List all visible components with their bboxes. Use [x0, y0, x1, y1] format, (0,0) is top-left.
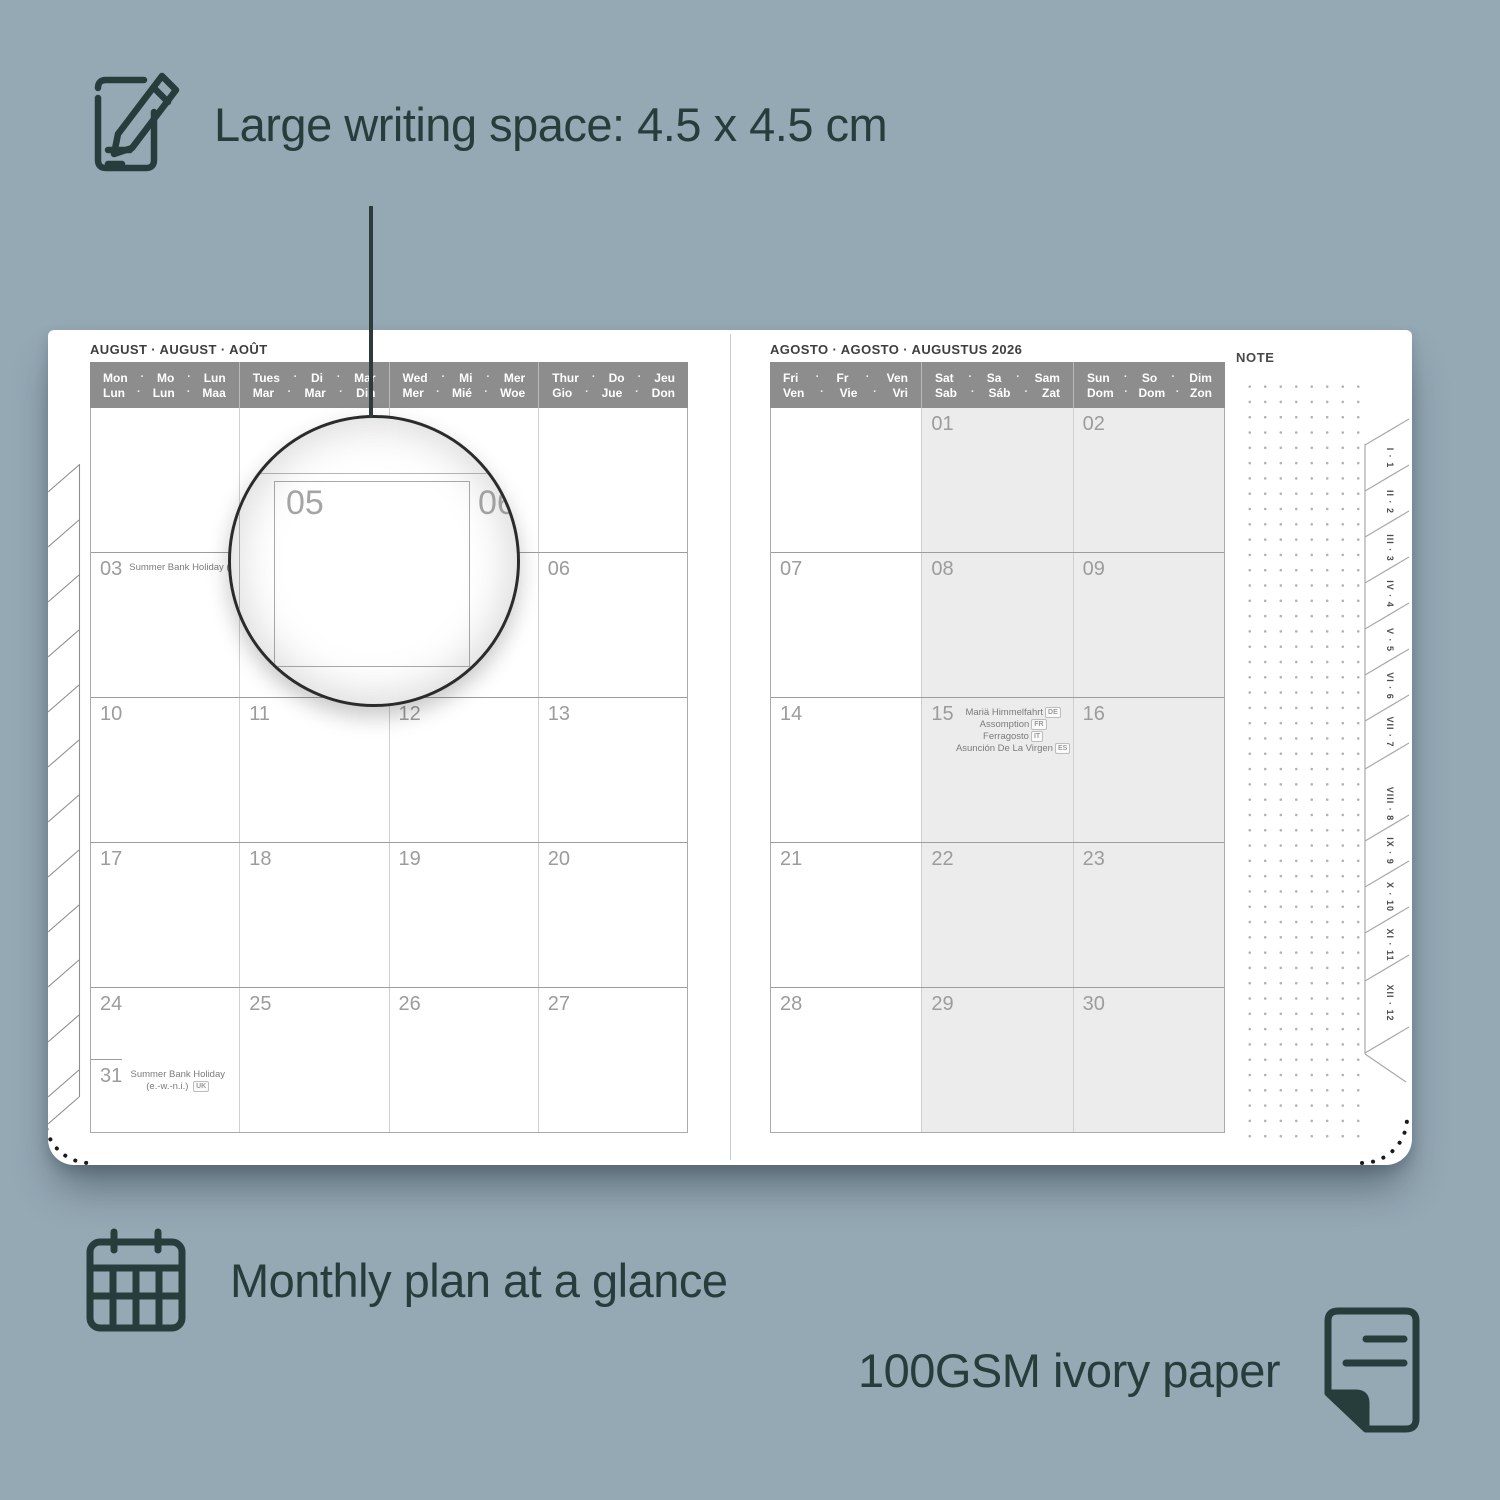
day-name: Tues [253, 372, 280, 384]
dot-separator: · [866, 372, 870, 383]
dot-separator: · [638, 372, 642, 383]
note-dot-grid [1237, 374, 1365, 1140]
calendar-cell: 19 [389, 843, 538, 987]
day-name: Mié [452, 387, 472, 399]
callout-pointer-line [369, 206, 373, 418]
calendar-cell: 10 [91, 698, 239, 842]
week-row: 28 29 30 [771, 987, 1224, 1132]
calendar-cell: 03 Summer Bank Holiday (sc.)UK [91, 553, 239, 697]
dot-separator: · [873, 387, 877, 398]
calendar-cell: 02 [1073, 408, 1224, 552]
date-number: 18 [240, 848, 271, 871]
dot-separator: · [592, 372, 596, 383]
date-number: 27 [539, 993, 570, 1016]
calendar-cell: 09 [1073, 553, 1224, 697]
calendar-cell: 27 [538, 988, 687, 1132]
calendar-cell: 18 [239, 843, 388, 987]
dot-separator: · [1124, 387, 1128, 398]
date-number: 14 [771, 703, 802, 726]
date-number: 11 [240, 703, 270, 726]
date-number: 31 [91, 1065, 122, 1088]
dot-separator: · [820, 387, 824, 398]
product-image-stage: Large writing space: 4.5 x 4.5 cm AUGUST… [0, 0, 1500, 1500]
day-name: Ven [783, 387, 804, 399]
calendar-cell: 25 [239, 988, 388, 1132]
magnified-date: 06 [478, 484, 516, 523]
day-name: Mar [253, 387, 274, 399]
day-name: Woe [500, 387, 525, 399]
calendar-cell: 28 [771, 988, 921, 1132]
date-number: 08 [922, 558, 953, 581]
calendar-cell: 22 [921, 843, 1072, 987]
holiday-label: FerragostoIT [983, 731, 1043, 742]
dot-separator: · [442, 372, 446, 383]
day-name: Dom [1087, 387, 1114, 399]
calendar-cell: 23 [1073, 843, 1224, 987]
holiday-label: Mariä HimmelfahrtDE [965, 707, 1060, 718]
holiday-label: AssomptionFR [980, 719, 1047, 730]
magnifier-circle: 05 06 [228, 415, 520, 707]
date-number: 20 [539, 848, 570, 871]
magnified-date: 05 [286, 484, 324, 523]
date-number: 15 [922, 703, 953, 726]
writing-space-annotation: Large writing space: 4.5 x 4.5 cm [88, 70, 887, 178]
date-number: 25 [240, 993, 271, 1016]
day-header-group: Fri·Fr·Ven Ven·Vie·Vri [770, 362, 921, 408]
week-row: 24 31 Summer Bank Holiday (e.-w.-n.i.) U… [91, 987, 687, 1132]
day-name: Thur [552, 372, 579, 384]
calendar-cell: 16 [1073, 698, 1224, 842]
date-number: 13 [539, 703, 570, 726]
day-name: Jue [602, 387, 623, 399]
day-name: So [1142, 372, 1157, 384]
date-number: 03 [91, 558, 122, 581]
dot-separator: · [816, 372, 820, 383]
date-number: 10 [91, 703, 122, 726]
day-name: Dim [1189, 372, 1212, 384]
country-badge: FR [1031, 719, 1046, 730]
dot-separator: · [287, 387, 291, 398]
dot-separator: · [484, 387, 488, 398]
calendar-cell: 14 [771, 698, 921, 842]
day-header-group: Sat·Sa·Sam Sab·Sáb·Zat [921, 362, 1073, 408]
calendar-cell: 20 [538, 843, 687, 987]
dot-separator: · [141, 372, 145, 383]
right-day-header-bar: Fri·Fr·Ven Ven·Vie·Vri Sat·Sa·Sam Sab·Sá… [770, 362, 1225, 408]
left-day-header-bar: Mon·Mo·Lun Lun·Lun·Maa Tues·Di·Mar Mar·M… [90, 362, 688, 408]
day-name: Mo [157, 372, 174, 384]
dot-separator: · [1124, 372, 1128, 383]
dot-separator: · [1024, 387, 1028, 398]
day-name: Sa [987, 372, 1002, 384]
split-cell-bottom: 31 Summer Bank Holiday (e.-w.-n.i.) UK [91, 1060, 239, 1132]
calendar-cell-split: 24 31 Summer Bank Holiday (e.-w.-n.i.) U… [91, 988, 239, 1132]
pencil-note-icon [88, 70, 188, 178]
week-row: 01 02 [771, 408, 1224, 552]
day-name: Fri [783, 372, 798, 384]
calendar-cell: 11 [239, 698, 388, 842]
day-header-group: Tues·Di·Mar Mar·Mar·Din [239, 362, 389, 408]
day-name: Vie [840, 387, 858, 399]
calendar-cell: 17 [91, 843, 239, 987]
calendar-cell: 30 [1073, 988, 1224, 1132]
day-name: Lun [153, 387, 175, 399]
country-badge: ES [1055, 743, 1070, 754]
calendar-cell [91, 408, 239, 552]
day-name: Sam [1035, 372, 1060, 384]
day-name: Ven [887, 372, 908, 384]
dot-separator: · [137, 387, 141, 398]
date-number: 07 [771, 558, 802, 581]
day-name: Mar [304, 387, 325, 399]
country-badge: DE [1045, 707, 1061, 718]
calendar-cell: 07 [771, 553, 921, 697]
date-number: 02 [1074, 413, 1105, 436]
day-header-group: Thur·Do·Jeu Gio·Jue·Don [538, 362, 688, 408]
day-header-group: Sun·So·Dim Dom·Dom·Zon [1073, 362, 1225, 408]
calendar-cell: 08 [921, 553, 1072, 697]
week-row: 10 11 12 13 [91, 697, 687, 842]
dot-separator: · [1171, 372, 1175, 383]
date-number: 30 [1074, 993, 1105, 1016]
day-name: Don [652, 387, 675, 399]
date-number: 01 [922, 413, 953, 436]
week-row: 17 18 19 20 [91, 842, 687, 987]
dot-separator: · [187, 387, 191, 398]
calendar-cell: 26 [389, 988, 538, 1132]
day-name: Sab [935, 387, 957, 399]
dot-separator: · [436, 387, 440, 398]
date-number: 16 [1074, 703, 1105, 726]
dot-separator: · [1176, 387, 1180, 398]
day-header-group: Wed·Mi·Mer Mer·Mié·Woe [389, 362, 539, 408]
split-cell-top: 24 [91, 988, 122, 1060]
right-month-grid: 01 02 07 08 09 14 15 Mariä HimmelfahrtDE… [770, 408, 1225, 1133]
paper-annotation: 100GSM ivory paper [858, 1305, 1422, 1435]
calendar-cell: 15 Mariä HimmelfahrtDE AssomptionFR Ferr… [921, 698, 1072, 842]
note-panel-label: NOTE [1236, 350, 1275, 365]
date-number: 12 [390, 703, 421, 726]
date-number: 29 [922, 993, 953, 1016]
week-row: 14 15 Mariä HimmelfahrtDE AssomptionFR F… [771, 697, 1224, 842]
day-name: Mi [459, 372, 472, 384]
calendar-grid-icon [84, 1228, 188, 1332]
date-number: 21 [771, 848, 802, 871]
page-spine-divider [730, 334, 731, 1160]
dot-separator: · [294, 372, 298, 383]
day-name: Di [311, 372, 323, 384]
date-number: 19 [390, 848, 421, 871]
calendar-cell: 21 [771, 843, 921, 987]
calendar-cell: 06 [538, 553, 687, 697]
dot-separator: · [187, 372, 191, 383]
day-name: Gio [552, 387, 572, 399]
week-row: 21 22 23 [771, 842, 1224, 987]
calendar-cell: 01 [921, 408, 1072, 552]
day-name: Mer [504, 372, 525, 384]
dot-separator: · [971, 387, 975, 398]
country-badge: UK [193, 1081, 209, 1092]
day-header-group: Mon·Mo·Lun Lun·Lun·Maa [90, 362, 239, 408]
date-number: 28 [771, 993, 802, 1016]
date-number: 22 [922, 848, 953, 871]
calendar-cell: 29 [921, 988, 1072, 1132]
dot-separator: · [339, 387, 343, 398]
holiday-label: Summer Bank Holiday (e.-w.-n.i.) UK [122, 1065, 239, 1093]
day-name: Vri [893, 387, 908, 399]
day-name: Sun [1087, 372, 1110, 384]
paper-sheet-icon [1318, 1305, 1422, 1435]
holiday-label-group: Mariä HimmelfahrtDE AssomptionFR Ferrago… [954, 703, 1073, 755]
calendar-cell [538, 408, 687, 552]
day-name: Zat [1042, 387, 1060, 399]
calendar-cell: 12 [389, 698, 538, 842]
date-number: 17 [91, 848, 122, 871]
dot-separator: · [635, 387, 639, 398]
day-name: Mon [103, 372, 128, 384]
holiday-label: Summer Bank Holiday (sc.)UK [122, 558, 239, 574]
dot-separator: · [585, 387, 589, 398]
day-name: Sáb [989, 387, 1011, 399]
dot-separator: · [1016, 372, 1020, 383]
date-number: 06 [539, 558, 570, 581]
paper-text: 100GSM ivory paper [858, 1343, 1280, 1398]
magnified-cell-border [239, 418, 240, 704]
dot-separator: · [968, 372, 972, 383]
day-name: Maa [202, 387, 225, 399]
dot-separator: · [337, 372, 341, 383]
monthly-plan-annotation: Monthly plan at a glance [84, 1228, 728, 1332]
dot-separator: · [486, 372, 490, 383]
calendar-cell: 13 [538, 698, 687, 842]
day-name: Sat [935, 372, 954, 384]
week-row: 07 08 09 [771, 552, 1224, 697]
day-name: Dom [1139, 387, 1166, 399]
day-name: Lun [204, 372, 226, 384]
date-number: 24 [91, 993, 122, 1016]
day-name: Zon [1190, 387, 1212, 399]
monthly-plan-text: Monthly plan at a glance [230, 1253, 728, 1308]
right-page-title: AGOSTO · AGOSTO · AUGUSTUS 2026 [770, 342, 1022, 357]
day-name: Jeu [654, 372, 675, 384]
day-name: Lun [103, 387, 125, 399]
holiday-label: Asunción De La VirgenES [956, 743, 1070, 754]
date-number: 26 [390, 993, 421, 1016]
magnified-cell-border [231, 473, 517, 474]
day-name: Wed [403, 372, 428, 384]
day-name: Fr [836, 372, 848, 384]
country-badge: IT [1031, 731, 1043, 742]
date-number: 09 [1074, 558, 1105, 581]
day-name: Do [609, 372, 625, 384]
left-page-title: AUGUST · AUGUST · AOÛT [90, 342, 268, 357]
date-number: 23 [1074, 848, 1105, 871]
calendar-cell [771, 408, 921, 552]
day-name: Mer [403, 387, 424, 399]
writing-space-text: Large writing space: 4.5 x 4.5 cm [214, 97, 887, 152]
